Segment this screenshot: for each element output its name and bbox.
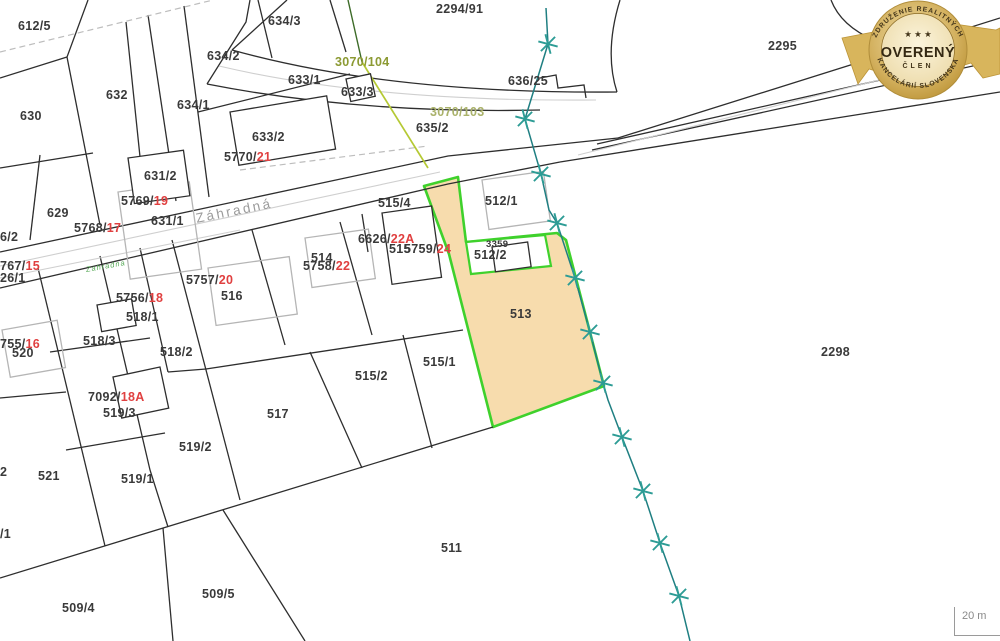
- badge-title: OVERENÝ: [881, 43, 955, 61]
- parcel-label-text: 519/3: [103, 406, 136, 420]
- parcel-label: 612/5: [18, 20, 51, 33]
- parcel-label: 2295: [768, 40, 797, 53]
- parcel-label-text: 26/1: [0, 271, 26, 285]
- parcel-label: 632: [106, 89, 128, 102]
- parcel-label: 515/1: [423, 356, 456, 369]
- parcel-label-text: 631/1: [151, 214, 184, 228]
- parcel-label-text: 509/4: [62, 601, 95, 615]
- olive-label: 3070/103: [430, 106, 485, 119]
- parcel-label-text: 633/2: [252, 130, 285, 144]
- parcel-label: 516: [221, 290, 243, 303]
- survey-number: 5757/20: [186, 274, 233, 287]
- parcel-label: 518/3: [83, 335, 116, 348]
- parcel-label-text: 512/1: [485, 194, 518, 208]
- parcel-label-text: 2298: [821, 345, 850, 359]
- parcel-label-red-suffix: 17: [107, 221, 122, 235]
- parcel-label-text: 634/1: [177, 98, 210, 112]
- highlighted-parcel-513[interactable]: [424, 177, 604, 427]
- badge-subtitle: ČLEN: [902, 61, 933, 70]
- parcel-label-text: 634/2: [207, 49, 240, 63]
- parcel-label: 520: [12, 347, 34, 360]
- parcel-label: 518/2: [160, 346, 193, 359]
- parcel-label-text: 6/2: [0, 230, 18, 244]
- parcel-label: 519/3: [103, 407, 136, 420]
- parcel-label-text: 633/3: [341, 85, 374, 99]
- parcel-label: 519/2: [179, 441, 212, 454]
- parcel-label: 633/1: [288, 74, 321, 87]
- parcel-label-text: 5770/: [224, 150, 257, 164]
- olive-label: 3070/104: [335, 56, 390, 69]
- parcel-label-text: 630: [20, 109, 42, 123]
- parcel-label: 2294/91: [436, 3, 483, 16]
- parcel-label: 512/1: [485, 195, 518, 208]
- parcel-label-text: 629: [47, 206, 69, 220]
- parcel-label-red-suffix: 22: [336, 259, 351, 273]
- survey-number: 5759/24: [404, 243, 451, 256]
- parcel-label: 2298: [821, 346, 850, 359]
- parcel-label: 629: [47, 207, 69, 220]
- parcel-label-red-suffix: 24: [437, 242, 452, 256]
- parcel-label: 515/2: [355, 370, 388, 383]
- parcel-label: 513: [510, 308, 532, 321]
- parcel-label-text: 2294/91: [436, 2, 483, 16]
- parcel-label: 633/3: [341, 86, 374, 99]
- parcel-label-text: 5757/: [186, 273, 219, 287]
- parcel-label: 511: [441, 542, 462, 555]
- parcel-label-text: 632: [106, 88, 128, 102]
- parcel-label: 517: [267, 408, 289, 421]
- parcel-label-text: 513: [510, 307, 532, 321]
- parcel-label: 6/2: [0, 231, 18, 244]
- parcel-label-text: 515/1: [423, 355, 456, 369]
- parcel-label: 518/1: [126, 311, 159, 324]
- parcel-label: 521: [38, 470, 60, 483]
- parcel-label-text: 517: [267, 407, 289, 421]
- badge-stars: ★ ★ ★: [904, 29, 932, 39]
- parcel-label-text: 516: [221, 289, 243, 303]
- parcel-label-red-suffix: 18: [149, 291, 164, 305]
- parcel-label-text: 519/2: [179, 440, 212, 454]
- cadastral-map: Záhradná Zahradna 20 m ZDRUŽENIE REALITN…: [0, 0, 1000, 641]
- parcel-label: 2: [0, 466, 7, 479]
- parcel-label-text: 5756/: [116, 291, 149, 305]
- parcel-label: 512/2: [474, 249, 507, 262]
- parcel-label-text: 520: [12, 346, 34, 360]
- parcel-label-text: 518/3: [83, 334, 116, 348]
- parcel-label-text: 2295: [768, 39, 797, 53]
- parcel-label-text: 509/5: [202, 587, 235, 601]
- parcel-label-text: 521: [38, 469, 60, 483]
- parcel-label-text: 5759/: [404, 242, 437, 256]
- parcel-label: 631/1: [151, 215, 184, 228]
- parcel-label-text: /1: [0, 527, 11, 541]
- parcel-label-text: 515/4: [378, 196, 411, 210]
- parcel-label-text: 3070/103: [430, 105, 485, 119]
- parcel-label-red-suffix: 21: [257, 150, 272, 164]
- verified-member-badge: ZDRUŽENIE REALITNÝCH KANCELÁRIÍ SLOVENSK…: [838, 0, 1000, 110]
- parcel-label: 509/4: [62, 602, 95, 615]
- parcel-label-text: 519/1: [121, 472, 154, 486]
- parcel-label: 509/5: [202, 588, 235, 601]
- parcel-label-text: 518/1: [126, 310, 159, 324]
- scale-bar-label: 20 m: [962, 610, 986, 622]
- parcel-label-text: 635/2: [416, 121, 449, 135]
- survey-number: 7092/18A: [88, 391, 145, 404]
- parcel-label: 26/1: [0, 272, 26, 285]
- parcel-label-text: 636/25: [508, 74, 548, 88]
- parcel-label-text: 2: [0, 465, 7, 479]
- parcel-label-text: 515/2: [355, 369, 388, 383]
- parcel-label-text: 5769/: [121, 194, 154, 208]
- scale-bar: 20 m: [954, 607, 1000, 635]
- parcel-label-text: 631/2: [144, 169, 177, 183]
- parcel-label: 634/1: [177, 99, 210, 112]
- parcel-label: 635/2: [416, 122, 449, 135]
- parcel-label-text: 3070/104: [335, 55, 390, 69]
- parcel-label: 634/2: [207, 50, 240, 63]
- parcel-label: /1: [0, 528, 11, 541]
- parcel-label-text: 6626/: [358, 232, 391, 246]
- parcel-label-text: 512/2: [474, 248, 507, 262]
- parcel-label-text: 5768/: [74, 221, 107, 235]
- parcel-label-red-suffix: 19: [154, 194, 169, 208]
- survey-number: 5770/21: [224, 151, 271, 164]
- survey-number: 5756/18: [116, 292, 163, 305]
- survey-number: 5768/17: [74, 222, 121, 235]
- parcel-label: 634/3: [268, 15, 301, 28]
- parcel-label: 633/2: [252, 131, 285, 144]
- parcel-label-red-suffix: 20: [219, 273, 234, 287]
- parcel-label-red-suffix: 15: [26, 259, 41, 273]
- parcel-label-text: 7092/: [88, 390, 121, 404]
- parcel-label-text: 633/1: [288, 73, 321, 87]
- parcel-label-text: 518/2: [160, 345, 193, 359]
- parcel-label: 515/4: [378, 197, 411, 210]
- parcel-label-text: 612/5: [18, 19, 51, 33]
- parcel-label: 630: [20, 110, 42, 123]
- survey-number: 5758/22: [303, 260, 350, 273]
- parcel-label-text: 5758/: [303, 259, 336, 273]
- parcel-label: 631/2: [144, 170, 177, 183]
- parcel-label: 636/25: [508, 75, 548, 88]
- green-utility-line: [348, 0, 362, 62]
- parcel-label-red-suffix: 18A: [121, 390, 145, 404]
- parcel-label: 519/1: [121, 473, 154, 486]
- parcel-label-text: 511: [441, 541, 462, 555]
- survey-number: 5769/19: [121, 195, 168, 208]
- parcel-label-text: 634/3: [268, 14, 301, 28]
